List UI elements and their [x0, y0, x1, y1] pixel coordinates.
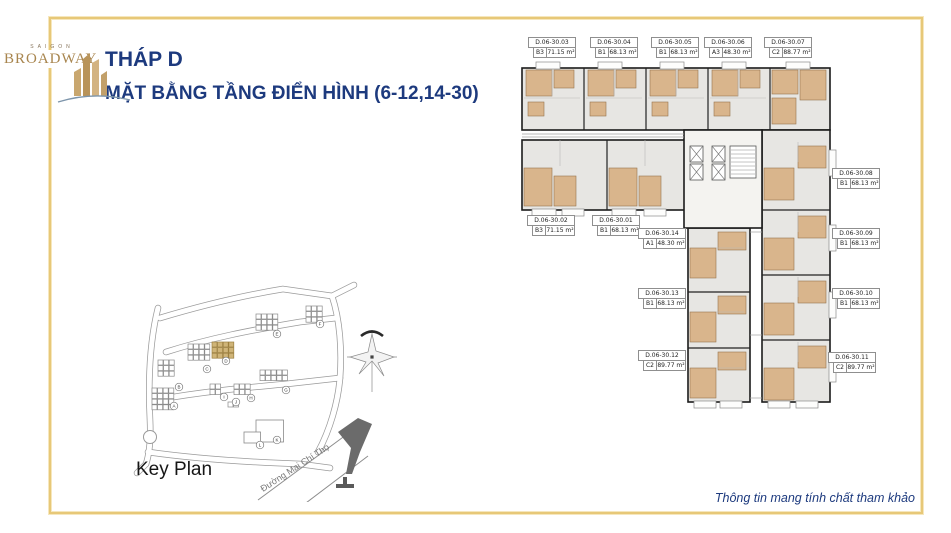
- unit-area-row: B168.13 m²: [656, 48, 699, 58]
- unit-type: C2: [834, 363, 847, 372]
- unit-type: B1: [838, 239, 851, 248]
- unit-code: D.06-30.12: [638, 350, 686, 361]
- key-plan-label: Key Plan: [136, 459, 212, 481]
- unit-type: B1: [657, 48, 670, 57]
- svg-text:A: A: [172, 404, 175, 409]
- unit-area: 89.77 m²: [657, 361, 685, 370]
- unit-type: C2: [770, 48, 783, 57]
- unit-area: 68.13 m²: [851, 179, 879, 188]
- unit-code: D.06-30.04: [590, 37, 638, 48]
- unit-area: 68.13 m²: [609, 48, 637, 57]
- unit-label: D.06-30.08B168.13 m²: [832, 168, 880, 189]
- unit-area-row: C289.77 m²: [643, 361, 686, 371]
- unit-label: D.06-30.09B168.13 m²: [832, 228, 880, 249]
- unit-type: B1: [644, 299, 657, 308]
- unit-area-row: A148.30 m²: [643, 239, 686, 249]
- unit-code: D.06-30.02: [527, 215, 575, 226]
- unit-area-row: C289.77 m²: [833, 363, 876, 373]
- unit-area-row: C288.77 m²: [769, 48, 812, 58]
- page-title: THÁP D: [105, 48, 479, 72]
- unit-type: B3: [534, 48, 547, 57]
- unit-code: D.06-30.05: [651, 37, 699, 48]
- unit-label: D.06-30.04B168.13 m²: [590, 37, 638, 58]
- unit-label: D.06-30.11C289.77 m²: [828, 352, 876, 373]
- svg-text:I: I: [223, 395, 224, 400]
- direction-arrow: [338, 418, 372, 474]
- unit-area: 68.13 m²: [657, 299, 685, 308]
- unit-area: 48.30 m²: [723, 48, 751, 57]
- key-plan-blocks: [152, 306, 322, 443]
- unit-type: A1: [644, 239, 657, 248]
- unit-area: 68.13 m²: [670, 48, 698, 57]
- roundabout: [144, 431, 157, 444]
- svg-text:B: B: [177, 385, 180, 390]
- unit-area-row: B168.13 m²: [643, 299, 686, 309]
- unit-code: D.06-30.10: [832, 288, 880, 299]
- svg-text:J: J: [235, 400, 237, 405]
- svg-text:E: E: [275, 332, 278, 337]
- unit-code: D.06-30.13: [638, 288, 686, 299]
- unit-label: D.06-30.06A348.30 m²: [704, 37, 752, 58]
- unit-code: D.06-30.09: [832, 228, 880, 239]
- unit-area: 68.13 m²: [851, 299, 879, 308]
- disclaimer-text: Thông tin mang tính chất tham khảo: [660, 491, 915, 505]
- unit-code: D.06-30.08: [832, 168, 880, 179]
- stairs-icon: [730, 146, 756, 178]
- unit-area-row: B371.15 m²: [533, 48, 576, 58]
- svg-text:G: G: [284, 388, 288, 393]
- unit-label: D.06-30.02B371.15 m²: [527, 215, 575, 236]
- logo-towers-icon: [50, 50, 138, 106]
- unit-label: D.06-30.14A148.30 m²: [638, 228, 686, 249]
- svg-text:H: H: [249, 396, 252, 401]
- unit-label: D.06-30.13B168.13 m²: [638, 288, 686, 309]
- unit-code: D.06-30.07: [764, 37, 812, 48]
- floor-plan-drawing: [505, 25, 935, 490]
- unit-area-row: B168.13 m²: [595, 48, 638, 58]
- unit-area-row: B168.13 m²: [837, 239, 880, 249]
- unit-code: D.06-30.14: [638, 228, 686, 239]
- unit-type: B1: [598, 226, 611, 235]
- unit-code: D.06-30.06: [704, 37, 752, 48]
- header: THÁP D MẶT BẰNG TẦNG ĐIỂN HÌNH (6-12,14-…: [105, 48, 479, 105]
- unit-area-row: B371.15 m²: [532, 226, 575, 236]
- compass-north-icon: [347, 330, 397, 392]
- svg-text:F: F: [319, 322, 322, 327]
- unit-type: B1: [838, 299, 851, 308]
- unit-area: 89.77 m²: [847, 363, 875, 372]
- unit-code: D.06-30.03: [528, 37, 576, 48]
- unit-label: D.06-30.12C289.77 m²: [638, 350, 686, 371]
- unit-label: D.06-30.05B168.13 m²: [651, 37, 699, 58]
- unit-area: 71.15 m²: [547, 48, 575, 57]
- unit-type: A3: [710, 48, 723, 57]
- page: SAIGON BROADWAY THÁP D MẶT BẰNG TẦNG ĐIỂ…: [0, 0, 951, 533]
- unit-area: 68.13 m²: [851, 239, 879, 248]
- unit-label: D.06-30.10B168.13 m²: [832, 288, 880, 309]
- unit-label: D.06-30.03B371.15 m²: [528, 37, 576, 58]
- unit-code: D.06-30.11: [828, 352, 876, 363]
- unit-code: D.06-30.01: [592, 215, 640, 226]
- unit-area-row: A348.30 m²: [709, 48, 752, 58]
- svg-text:K: K: [275, 438, 278, 443]
- unit-area: 68.13 m²: [611, 226, 639, 235]
- unit-type: B1: [596, 48, 609, 57]
- unit-area-row: B168.13 m²: [837, 179, 880, 189]
- unit-label: D.06-30.01B168.13 m²: [592, 215, 640, 236]
- unit-type: C2: [644, 361, 657, 370]
- unit-area: 88.77 m²: [783, 48, 811, 57]
- unit-label: D.06-30.07C288.77 m²: [764, 37, 812, 58]
- unit-type: B3: [533, 226, 546, 235]
- saigon-broadway-logo: SAIGON BROADWAY: [4, 50, 96, 68]
- page-subtitle: MẶT BẰNG TẦNG ĐIỂN HÌNH (6-12,14-30): [105, 83, 479, 105]
- unit-type: B1: [838, 179, 851, 188]
- unit-area: 48.30 m²: [657, 239, 685, 248]
- unit-area-row: B168.13 m²: [837, 299, 880, 309]
- unit-area-row: B168.13 m²: [597, 226, 640, 236]
- unit-area: 71.15 m²: [546, 226, 574, 235]
